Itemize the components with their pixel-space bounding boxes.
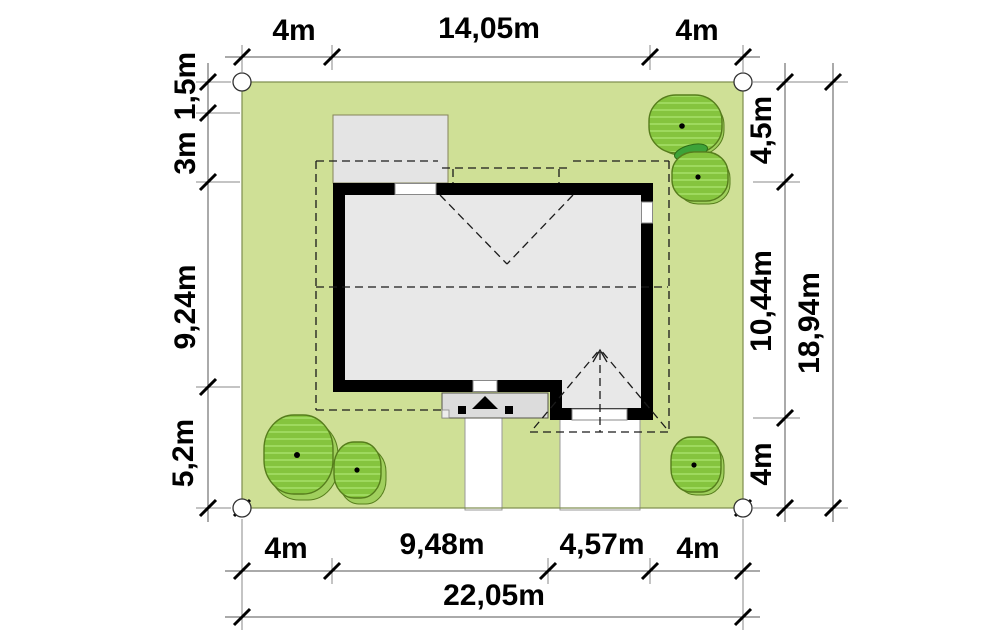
porch-step bbox=[442, 410, 449, 418]
dim-label-bottom-left-setback: 4m bbox=[264, 534, 307, 564]
dim-label-right-total-depth: 18,94m bbox=[795, 272, 825, 374]
dim-label-top-right-setback: 4m bbox=[675, 16, 718, 46]
dim-label-top-house-width: 14,05m bbox=[438, 14, 540, 44]
side-window-opening bbox=[642, 202, 653, 223]
dim-label-left-front-setback: 3m bbox=[171, 131, 201, 174]
dim-label-right-rear-setback: 4m bbox=[747, 442, 777, 485]
terrace bbox=[333, 115, 448, 183]
site-plan: 4m 14,05m 4m 1,5m 3m 9,24m 5,2m 4,5m 10,… bbox=[0, 0, 1000, 633]
dim-label-right-house-depth: 10,44m bbox=[747, 250, 777, 352]
dim-label-left-house-depth: 9,24m bbox=[171, 264, 201, 349]
dim-label-bottom-house-width: 9,48m bbox=[399, 530, 484, 560]
entrance-walkway bbox=[465, 418, 502, 510]
dim-label-left-terrace-offset: 1,5m bbox=[171, 52, 201, 120]
entrance-door-opening bbox=[473, 381, 497, 392]
dim-label-left-rear-setback: 5,2m bbox=[169, 419, 199, 487]
tree-bottom-right bbox=[671, 437, 724, 495]
front-window-opening bbox=[395, 184, 436, 195]
dim-label-bottom-right-setback: 4m bbox=[676, 534, 719, 564]
site-plan-drawing bbox=[0, 0, 1000, 633]
tree-large-bottom-left bbox=[264, 415, 338, 500]
corner-marker-top-left bbox=[233, 73, 251, 91]
corner-marker-top-right bbox=[734, 73, 752, 91]
house bbox=[333, 183, 653, 420]
porch-post-right bbox=[505, 406, 513, 414]
porch-post-left bbox=[458, 406, 466, 414]
entrance-porch bbox=[442, 393, 548, 418]
corner-marker-bottom-right bbox=[734, 499, 752, 517]
dim-label-bottom-garage-width: 4,57m bbox=[559, 530, 644, 560]
dim-label-right-front-setback: 4,5m bbox=[747, 96, 777, 164]
dim-label-top-left-setback: 4m bbox=[272, 16, 315, 46]
corner-marker-bottom-left bbox=[233, 499, 251, 517]
tree-top-right-lower bbox=[672, 152, 730, 204]
dim-label-bottom-total-width: 22,05m bbox=[443, 581, 545, 611]
house-interior bbox=[345, 195, 641, 408]
